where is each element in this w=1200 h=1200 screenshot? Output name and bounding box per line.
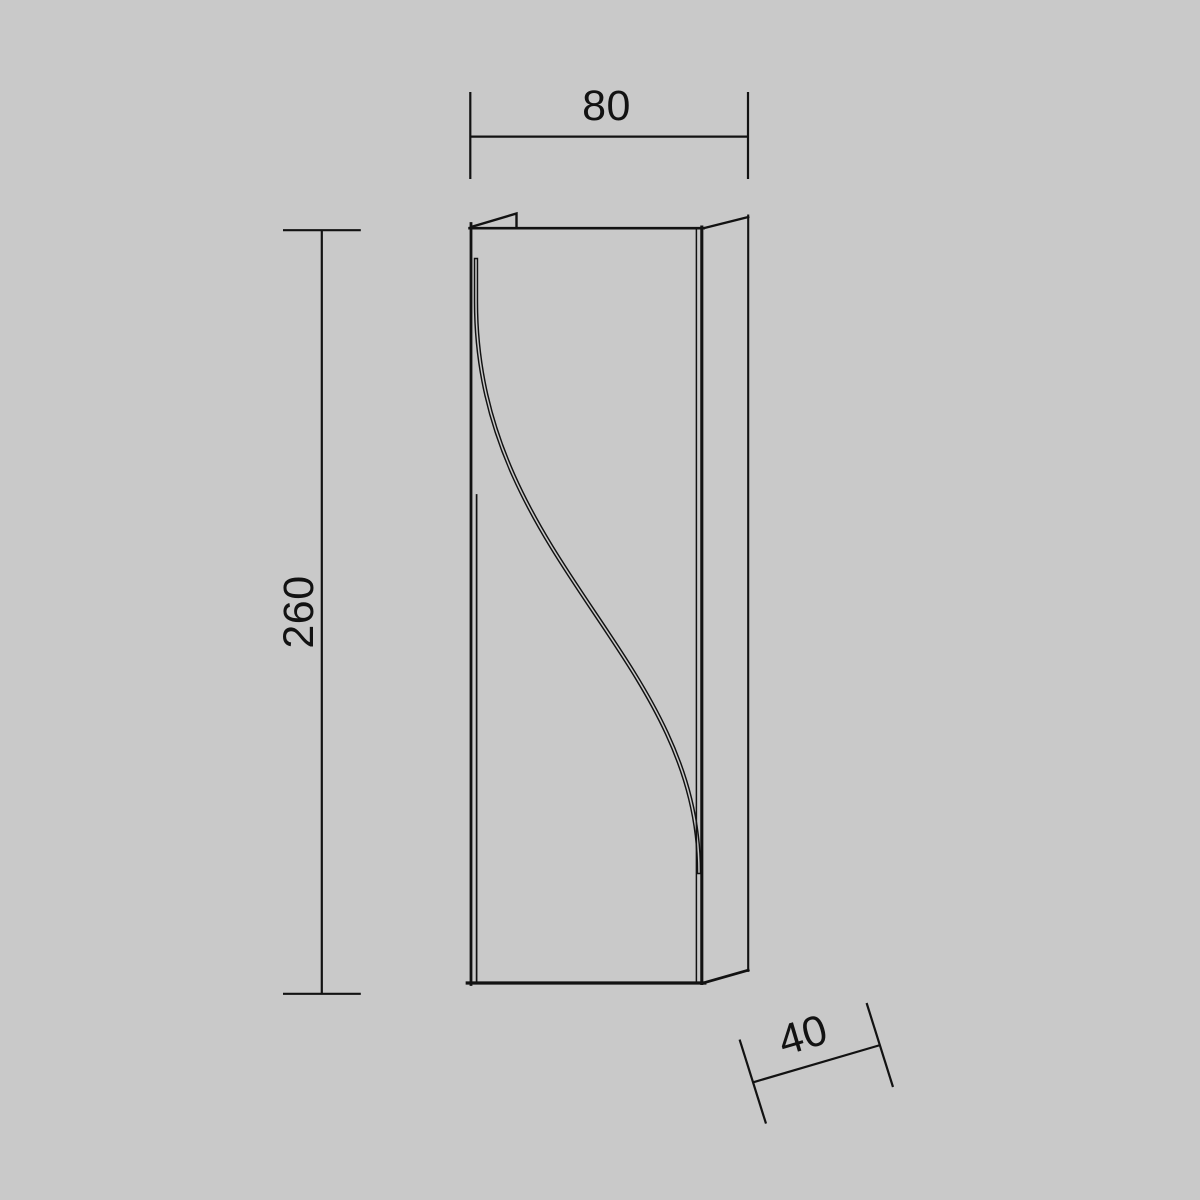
width-dimension-label: 80 <box>582 82 631 130</box>
drawing-background <box>0 0 1200 1200</box>
height-dimension-label: 260 <box>275 575 323 648</box>
dimension-drawing-canvas: 80 260 40 <box>0 0 1200 1200</box>
wall-lamp-dimension-drawing: 80 260 40 <box>0 0 1200 1200</box>
